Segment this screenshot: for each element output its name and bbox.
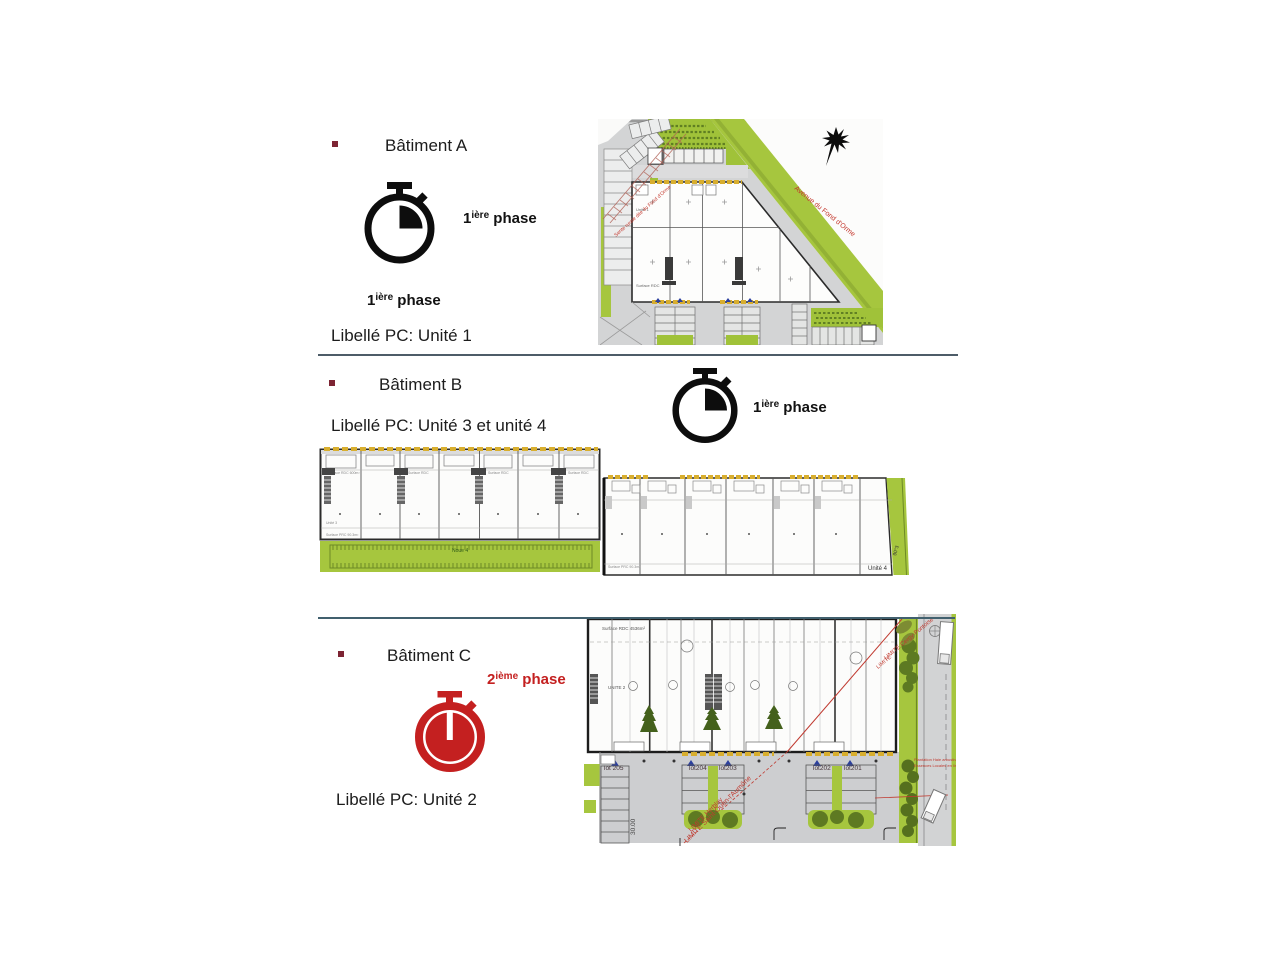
svg-text:lot201: lot201 xyxy=(844,765,862,772)
svg-text:lot202: lot202 xyxy=(813,765,831,772)
svg-text:Surface RDC: Surface RDC xyxy=(408,471,429,475)
svg-text:UNITE 2: UNITE 2 xyxy=(608,685,626,690)
svg-text:Surface RDC: Surface RDC xyxy=(488,471,509,475)
svg-text:Surface RDC: Surface RDC xyxy=(636,283,660,288)
svg-text:Plantation Haie arbustive: Plantation Haie arbustive xyxy=(914,757,956,762)
svg-text:30.00: 30.00 xyxy=(630,818,637,835)
svg-text:Surface RDC 4536m²: Surface RDC 4536m² xyxy=(602,626,646,631)
svg-text:Surface PRC 90.3m²: Surface PRC 90.3m² xyxy=(608,565,641,569)
svg-text:Surface RDC: Surface RDC xyxy=(568,471,589,475)
svg-text:Essences Locales en limite: Essences Locales en limite xyxy=(914,763,956,768)
svg-text:Noue 4: Noue 4 xyxy=(452,548,468,554)
svg-text:Unité 4: Unité 4 xyxy=(868,566,888,572)
svg-text:Unité 3: Unité 3 xyxy=(326,521,337,525)
svg-text:lot204: lot204 xyxy=(689,765,707,772)
svg-text:Surface PRC 90.3m²: Surface PRC 90.3m² xyxy=(326,533,359,537)
svg-text:lot203: lot203 xyxy=(719,765,737,772)
